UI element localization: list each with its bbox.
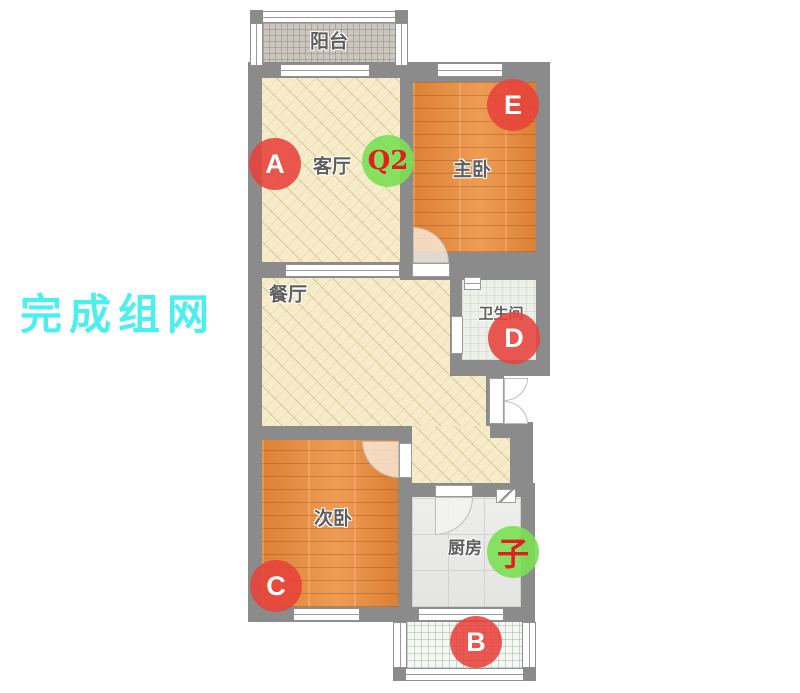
balcony-bottom-post-right xyxy=(523,668,536,681)
balcony-top-window-right xyxy=(395,23,408,66)
kitchen-balcony-window xyxy=(418,608,504,621)
entry-door xyxy=(489,378,504,424)
kitchen-label: 厨房 xyxy=(448,534,482,559)
marker-C[interactable]: C xyxy=(250,560,302,612)
watermark-text: 完成组网 xyxy=(20,281,216,342)
master-bedroom-label: 主卧 xyxy=(453,155,491,182)
living-dining-opening xyxy=(285,264,400,277)
marker-B[interactable]: B xyxy=(450,616,502,668)
balcony-top-window-left xyxy=(250,23,263,66)
floor-plan: 阳台 客厅 主卧 餐厅 卫生间 次卧 厨房 A Q2 E D C 子 B 完成组… xyxy=(0,0,800,693)
balcony-top-label: 阳台 xyxy=(310,27,348,54)
balcony-bottom-window-left xyxy=(393,622,407,668)
balcony-top-window-top xyxy=(250,11,408,23)
master-door xyxy=(412,263,450,277)
balcony-bottom-window-bottom xyxy=(393,668,536,681)
balcony-bottom-post-left xyxy=(393,668,406,681)
kitchen-door xyxy=(435,485,473,497)
living-room-label: 客厅 xyxy=(313,152,351,179)
marker-D[interactable]: D xyxy=(488,312,540,364)
bathroom-door xyxy=(451,316,463,354)
balcony-top-post-right xyxy=(395,10,408,23)
second-bedroom-label: 次卧 xyxy=(314,504,352,531)
second-bedroom-window xyxy=(293,608,360,621)
window-icon xyxy=(464,277,481,290)
wall-secondbr-top xyxy=(248,426,412,440)
secondbr-door xyxy=(399,443,412,478)
dining-room-label: 餐厅 xyxy=(269,280,307,307)
marker-E[interactable]: E xyxy=(487,79,539,131)
wall-bathroom-bottom xyxy=(450,360,550,376)
marker-Q2[interactable]: Q2 xyxy=(362,135,414,187)
entry-door-arc-bottom xyxy=(504,401,528,424)
entry-door-arc-top xyxy=(504,378,528,401)
living-balcony-window xyxy=(280,64,370,77)
balcony-bottom-window-right xyxy=(522,622,536,668)
marker-A[interactable]: A xyxy=(249,138,301,190)
marker-zi[interactable]: 子 xyxy=(487,526,539,578)
balcony-top-post-left xyxy=(250,10,263,23)
master-bedroom-window xyxy=(437,63,503,77)
range-hood-icon xyxy=(496,489,516,503)
